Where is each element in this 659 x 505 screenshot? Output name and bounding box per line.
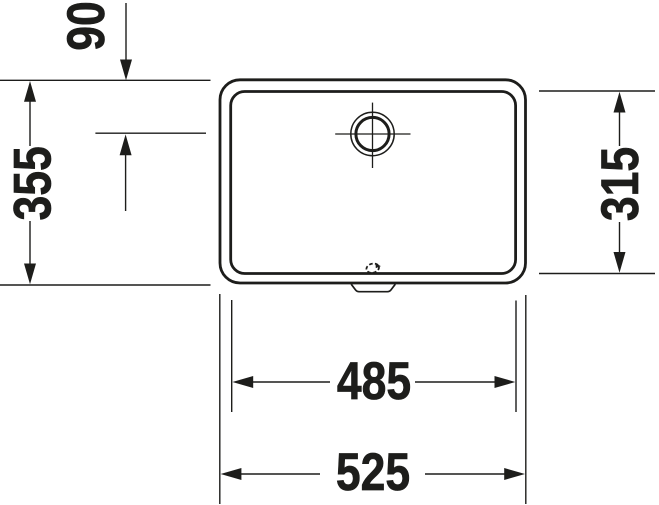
svg-text:355: 355 <box>4 146 62 220</box>
svg-text:315: 315 <box>591 147 649 221</box>
svg-text:485: 485 <box>337 352 411 410</box>
svg-text:90: 90 <box>57 1 115 51</box>
svg-text:525: 525 <box>336 443 410 501</box>
